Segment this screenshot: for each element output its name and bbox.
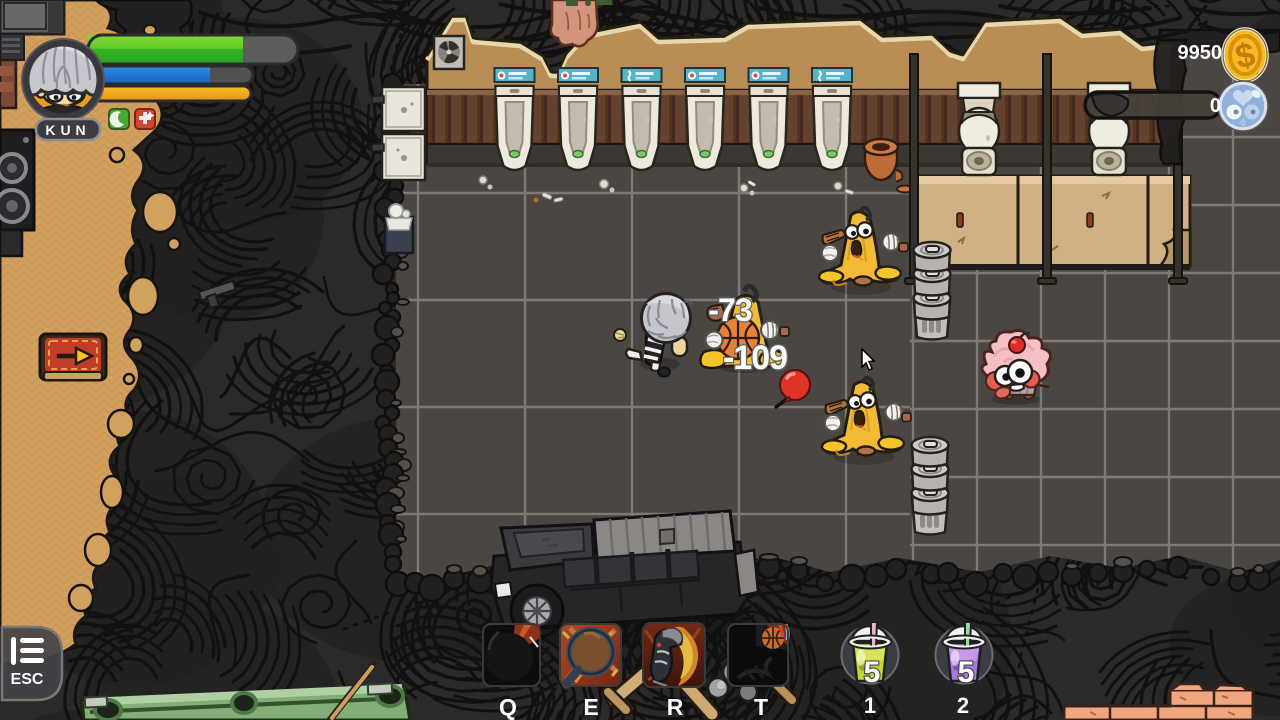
svg-text:KUN: KUN [45,122,90,138]
svg-text:1: 1 [864,693,876,718]
svg-text:E: E [583,694,598,720]
svg-text:5: 5 [958,656,975,689]
svg-text:Q: Q [499,694,517,720]
svg-text:T: T [754,694,768,720]
svg-text:2: 2 [957,693,969,718]
svg-text:R: R [667,694,684,720]
svg-text:ESC: ESC [11,671,44,688]
svg-text:5: 5 [864,656,881,689]
svg-text:-109: -109 [723,339,787,377]
svg-text:-73: -73 [708,292,751,328]
svg-text:9950: 9950 [1178,42,1223,64]
svg-text:0: 0 [1210,95,1221,117]
